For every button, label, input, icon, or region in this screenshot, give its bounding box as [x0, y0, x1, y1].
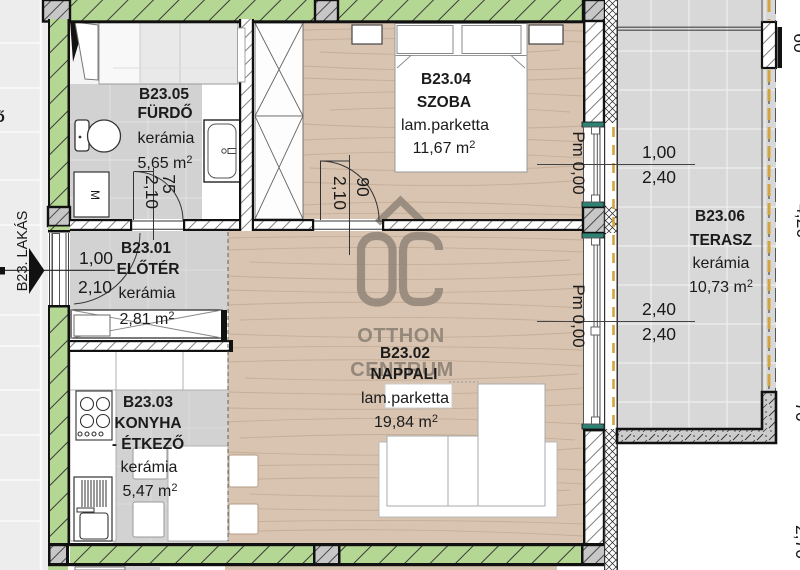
svg-text:kerámia: kerámia	[119, 285, 176, 302]
svg-text:10,73 m2: 10,73 m2	[689, 278, 753, 296]
svg-text:lam.parketta: lam.parketta	[401, 117, 489, 134]
svg-text:kerámia: kerámia	[138, 130, 195, 147]
svg-text:5,47 m2: 5,47 m2	[122, 482, 177, 500]
svg-text:11,67 m2: 11,67 m2	[413, 139, 476, 157]
svg-text:B23. LAKÁS: B23. LAKÁS	[14, 211, 31, 292]
svg-text:B23.02: B23.02	[380, 345, 430, 362]
svg-text:B23.01: B23.01	[121, 240, 171, 257]
svg-text:B23.06: B23.06	[695, 208, 745, 225]
svg-text:kerámia: kerámia	[121, 459, 178, 476]
svg-text:KONYHA: KONYHA	[114, 415, 181, 432]
svg-text:1,00: 1,00	[642, 142, 676, 162]
svg-text:lam.parketta: lam.parketta	[361, 390, 449, 407]
svg-text:B23.05: B23.05	[139, 86, 189, 103]
svg-text:ő: ő	[0, 109, 5, 126]
svg-text:70: 70	[792, 402, 800, 422]
svg-text:1,00: 1,00	[79, 248, 113, 268]
svg-text:75: 75	[159, 174, 179, 193]
svg-text:60: 60	[790, 33, 800, 53]
svg-text:2,10: 2,10	[330, 176, 350, 210]
svg-text:2,10: 2,10	[142, 175, 162, 209]
svg-text:90: 90	[353, 177, 373, 197]
svg-text:5,65 m2: 5,65 m2	[137, 154, 192, 172]
svg-text:4,26: 4,26	[793, 204, 800, 238]
svg-text:2,81 m2: 2,81 m2	[119, 310, 174, 328]
svg-text:NAPPALI: NAPPALI	[371, 366, 438, 383]
svg-text:2,70: 2,70	[792, 525, 800, 559]
svg-text:B23.03: B23.03	[123, 394, 173, 411]
svg-text:Pm 0,00: Pm 0,00	[569, 284, 588, 347]
svg-text:2,10: 2,10	[78, 277, 112, 297]
svg-text:- ÉTKEZŐ: - ÉTKEZŐ	[112, 435, 184, 453]
svg-text:M: M	[88, 190, 102, 200]
svg-text:OTTHON: OTTHON	[357, 325, 444, 347]
svg-text:SZOBA: SZOBA	[417, 94, 471, 111]
svg-text:B23.04: B23.04	[421, 71, 471, 88]
svg-text:ELŐTÉR: ELŐTÉR	[117, 260, 180, 278]
svg-text:2,40: 2,40	[642, 324, 676, 344]
svg-text:kerámia: kerámia	[693, 255, 750, 272]
svg-text:TERASZ: TERASZ	[690, 232, 753, 249]
svg-text:Pm 0,00: Pm 0,00	[569, 131, 588, 194]
svg-text:2,40: 2,40	[642, 167, 676, 187]
svg-text:FÜRDŐ: FÜRDŐ	[137, 104, 192, 122]
svg-text:19,84 m2: 19,84 m2	[374, 413, 438, 431]
svg-text:2,40: 2,40	[642, 299, 676, 319]
